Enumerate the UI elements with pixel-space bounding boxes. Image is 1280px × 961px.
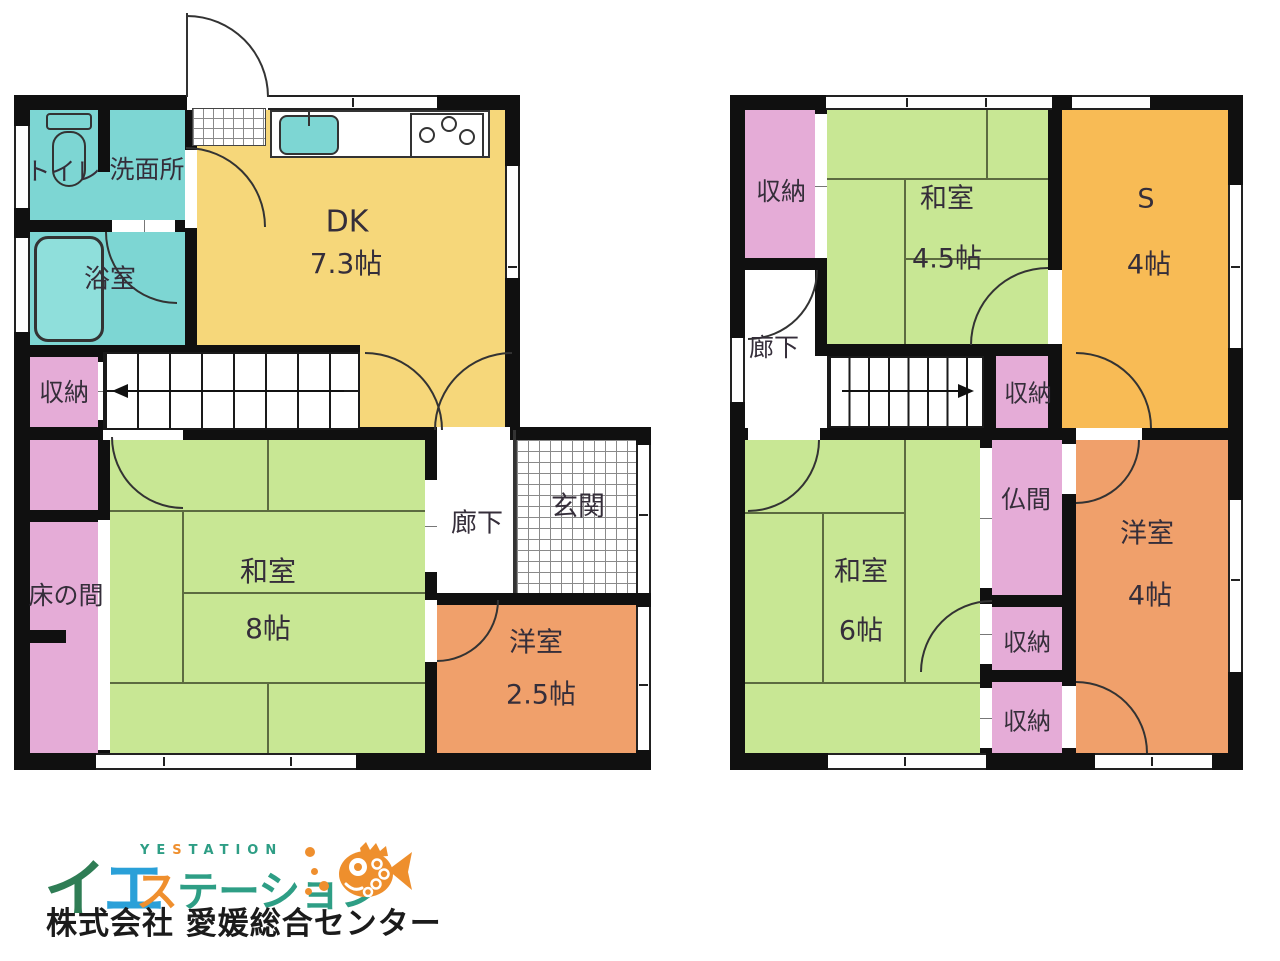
room-label-tokonoma: 床の間 xyxy=(28,576,103,612)
door-arc xyxy=(187,15,269,97)
room-label-storage-r1: 収納 xyxy=(1003,623,1051,658)
logo-yestation-ye: YE xyxy=(140,843,172,858)
wall-segment xyxy=(22,630,66,643)
window xyxy=(96,753,356,770)
room-size-dk: 7.3帖 xyxy=(310,242,383,282)
wall-segment xyxy=(827,344,1062,356)
door-opening xyxy=(1062,686,1076,748)
room-label-washitsu8: 和室 xyxy=(240,550,296,590)
company-name: 株式会社 愛媛総合センター xyxy=(46,898,442,943)
room-label-washroom: 洗面所 xyxy=(109,150,184,186)
room-label-entrance: 玄関 xyxy=(551,485,605,524)
room-label-toilet: トイレ xyxy=(25,152,100,188)
room-label-dk: DK xyxy=(326,205,369,240)
dimension-tick xyxy=(1151,757,1153,766)
tatami-line xyxy=(986,108,988,178)
bubble-dot-icon xyxy=(311,868,318,875)
dimension-tick xyxy=(639,684,648,686)
room-label-youshitsu25: 洋室 xyxy=(509,621,563,660)
tatami-line xyxy=(100,682,430,684)
fish-mascot-icon xyxy=(332,840,414,904)
door-opening xyxy=(748,428,820,440)
butsuma-room xyxy=(992,440,1062,595)
room-size-washitsu8: 8帖 xyxy=(245,607,291,647)
sliding-door xyxy=(980,688,992,748)
wall-segment xyxy=(730,258,827,270)
stairs-direction-arrow xyxy=(842,390,962,392)
room-label-bathroom: 浴室 xyxy=(84,259,136,296)
room-label-storage-mid: 収納 xyxy=(1004,374,1052,409)
wall-segment xyxy=(22,510,100,522)
logo-dot-icon xyxy=(305,847,315,857)
door-opening xyxy=(425,600,437,662)
tatami-line xyxy=(904,178,906,344)
tatami-line xyxy=(904,432,906,682)
dimension-tick xyxy=(639,514,648,516)
tatami-line xyxy=(182,510,184,684)
sliding-door xyxy=(815,114,827,258)
tatami-line xyxy=(267,682,269,758)
wall-segment xyxy=(980,670,1076,682)
room-size-youshitsu4: 4帖 xyxy=(1128,574,1172,613)
dimension-tick xyxy=(163,757,165,766)
door-opening xyxy=(1062,444,1076,494)
window xyxy=(730,338,745,402)
dimension-tick xyxy=(290,757,292,766)
floor-plan-page: トイレ 洗面所 浴室 DK 7.3帖 収納 床の間 和室 8帖 廊下 玄関 洋室… xyxy=(0,0,1280,961)
tatami-line xyxy=(744,682,980,684)
room-label-corridor-f1: 廊下 xyxy=(451,503,503,540)
window xyxy=(826,95,1052,110)
room-label-storage-f1: 収納 xyxy=(39,373,89,409)
room-size-washitsu45: 4.5帖 xyxy=(912,237,982,276)
bubble-dot-icon xyxy=(305,888,312,895)
window xyxy=(1228,500,1243,672)
window xyxy=(636,607,651,750)
tatami-line xyxy=(744,512,906,514)
room-label-washitsu45: 和室 xyxy=(920,177,974,216)
tatami-line xyxy=(267,430,269,512)
room-size-washitsu6: 6帖 xyxy=(839,609,883,648)
room-size-youshitsu25: 2.5帖 xyxy=(506,673,576,712)
room-label-service: S xyxy=(1137,184,1154,215)
dimension-tick xyxy=(904,757,906,766)
dimension-tick xyxy=(352,98,354,107)
room-label-storage-top: 収納 xyxy=(756,172,806,208)
stairs-direction-arrow xyxy=(958,384,974,398)
entrance-door xyxy=(636,445,651,593)
wall-segment xyxy=(980,595,1076,607)
stairs-direction-arrow xyxy=(112,384,128,398)
stove-burner-icon xyxy=(441,116,457,132)
window xyxy=(505,166,520,278)
bubble-dot-icon xyxy=(319,881,329,891)
door-opening xyxy=(1076,428,1142,440)
dimension-tick xyxy=(906,98,908,107)
tatami-line xyxy=(182,592,430,594)
tatami-line xyxy=(100,510,430,512)
dimension-tick xyxy=(1231,579,1240,581)
room-label-washitsu6: 和室 xyxy=(834,550,888,589)
toilet-icon xyxy=(46,113,92,130)
divider-line xyxy=(513,430,516,593)
door-opening xyxy=(98,520,110,750)
tatami-line xyxy=(822,512,824,682)
logo-yestation-tation: TATION xyxy=(189,843,284,858)
sliding-door xyxy=(112,220,175,232)
room-size-service: 4帖 xyxy=(1127,243,1171,282)
room-label-corridor-f2: 廊下 xyxy=(749,328,799,364)
logo-yestation-text: YESTATION xyxy=(140,843,283,858)
window xyxy=(14,238,30,332)
stairs-direction-arrow xyxy=(126,390,344,392)
room-label-butsuma: 仏間 xyxy=(1001,480,1051,516)
window xyxy=(828,753,986,770)
backdoor-tile xyxy=(192,108,266,146)
room-label-youshitsu4: 洋室 xyxy=(1120,512,1174,551)
divider-line xyxy=(308,112,310,126)
wall-segment xyxy=(984,356,996,428)
room-label-storage-r2: 収納 xyxy=(1003,702,1051,737)
stove-burner-icon xyxy=(459,129,475,145)
window xyxy=(1095,753,1212,770)
sliding-door xyxy=(425,480,437,572)
dimension-tick xyxy=(508,266,517,268)
dimension-tick xyxy=(985,98,987,107)
sliding-door xyxy=(980,448,992,588)
door-opening xyxy=(1048,270,1062,344)
stove-burner-icon xyxy=(419,127,435,143)
logo-yestation-s: S xyxy=(172,843,188,858)
dimension-tick xyxy=(1231,266,1240,268)
window xyxy=(1072,95,1150,110)
